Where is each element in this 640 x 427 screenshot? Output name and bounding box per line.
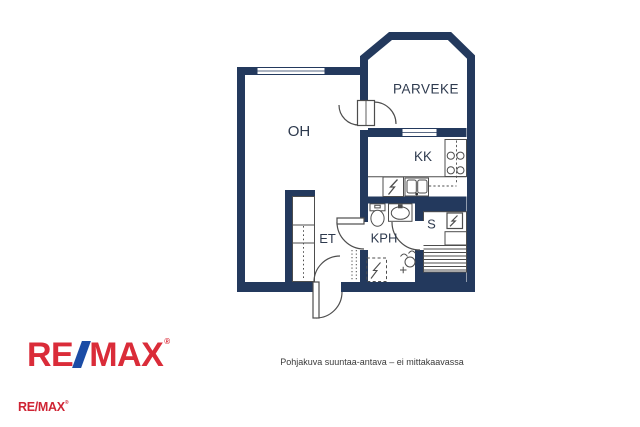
room-label-kph: KPH xyxy=(371,231,398,246)
wall-bottom-left xyxy=(237,282,315,292)
disclaimer-text: Pohjakuva suuntaa-antava – ei mittakaava… xyxy=(280,357,464,367)
sink-basin-right xyxy=(418,180,427,193)
room-label-s: S xyxy=(427,217,436,232)
floorplan-page: OH PARVEKE KK ET KPH S REMAX® Pohjakuva … xyxy=(0,0,640,427)
sauna-door-gap xyxy=(415,221,425,250)
remax-logo-max: MAX xyxy=(89,336,163,374)
washbasin-faucet xyxy=(399,205,403,208)
drain-cross xyxy=(400,267,407,274)
reservation-zigzag xyxy=(371,263,381,279)
room-label-kk: KK xyxy=(414,149,432,164)
kph-door-leaf xyxy=(337,218,364,224)
burner-icon xyxy=(457,152,464,159)
lightning-bolt-icon xyxy=(389,180,398,195)
burner-icon xyxy=(447,167,454,174)
windows xyxy=(257,68,437,137)
burner-icon xyxy=(457,167,464,174)
entry-door-leaf xyxy=(313,282,319,318)
washbasin-bowl xyxy=(391,207,409,220)
sink-basin-left xyxy=(407,180,416,193)
sink-faucet xyxy=(415,193,418,196)
room-label-parveke: PARVEKE xyxy=(393,82,459,97)
wall-bottom-right xyxy=(341,282,475,292)
counter-dashed-line xyxy=(429,141,457,187)
toilet-button xyxy=(375,205,380,208)
wall-kk-kph xyxy=(360,197,467,204)
wall-oh-balcony xyxy=(360,67,368,100)
registered-mark-small: ® xyxy=(65,400,68,406)
wall-left xyxy=(237,67,245,292)
burner-icon xyxy=(447,152,454,159)
remax-logo-small: RE/MAX® xyxy=(18,401,68,414)
kph-door-arc xyxy=(337,222,364,249)
drain-circle xyxy=(405,257,415,267)
entry-door-arc-out xyxy=(316,292,342,318)
balcony-door-arc-in xyxy=(339,105,359,125)
washer-reservation-icon xyxy=(367,258,387,282)
entry-door-arc-in xyxy=(314,256,340,282)
drain-hooks xyxy=(401,251,416,257)
remax-logo-re: RE xyxy=(27,336,73,374)
remax-logo-small-text: RE/MAX xyxy=(18,400,65,414)
room-label-oh: OH xyxy=(288,123,311,140)
coat-rack-icon xyxy=(352,250,356,282)
wall-oh-kk xyxy=(360,130,368,222)
wall-closet-cap xyxy=(285,190,315,197)
wall-closet-left xyxy=(285,190,292,282)
remax-logo: REMAX® xyxy=(27,338,170,372)
toilet-bowl xyxy=(371,210,384,226)
balcony-door-arc-out xyxy=(374,102,396,124)
registered-mark: ® xyxy=(164,337,170,346)
shower-drain-icon xyxy=(400,251,416,273)
room-label-et: ET xyxy=(319,231,336,246)
